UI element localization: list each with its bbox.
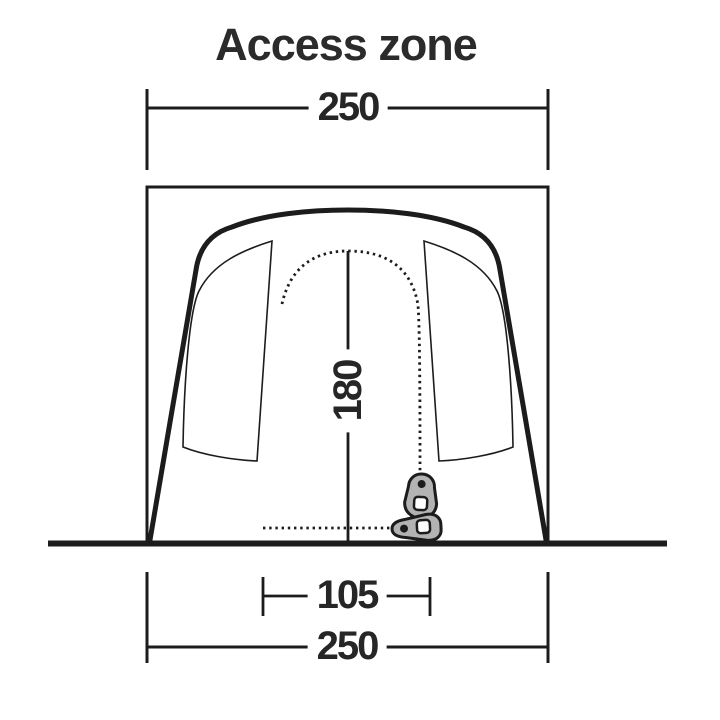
zipper-pull-slider-hole [417, 520, 431, 534]
zipper-pull-horizontal-icon [391, 514, 441, 543]
dim-label-height: 180 [327, 350, 369, 433]
dim-label-bottom-width: 250 [308, 625, 387, 667]
zipper-pull-vertical-icon [404, 473, 438, 519]
zipper-pull-slider-hole [414, 497, 428, 511]
dim-label-door-width: 105 [308, 574, 387, 616]
diagram-canvas: Access zone [0, 0, 720, 720]
dim-label-top-width: 250 [309, 86, 388, 128]
